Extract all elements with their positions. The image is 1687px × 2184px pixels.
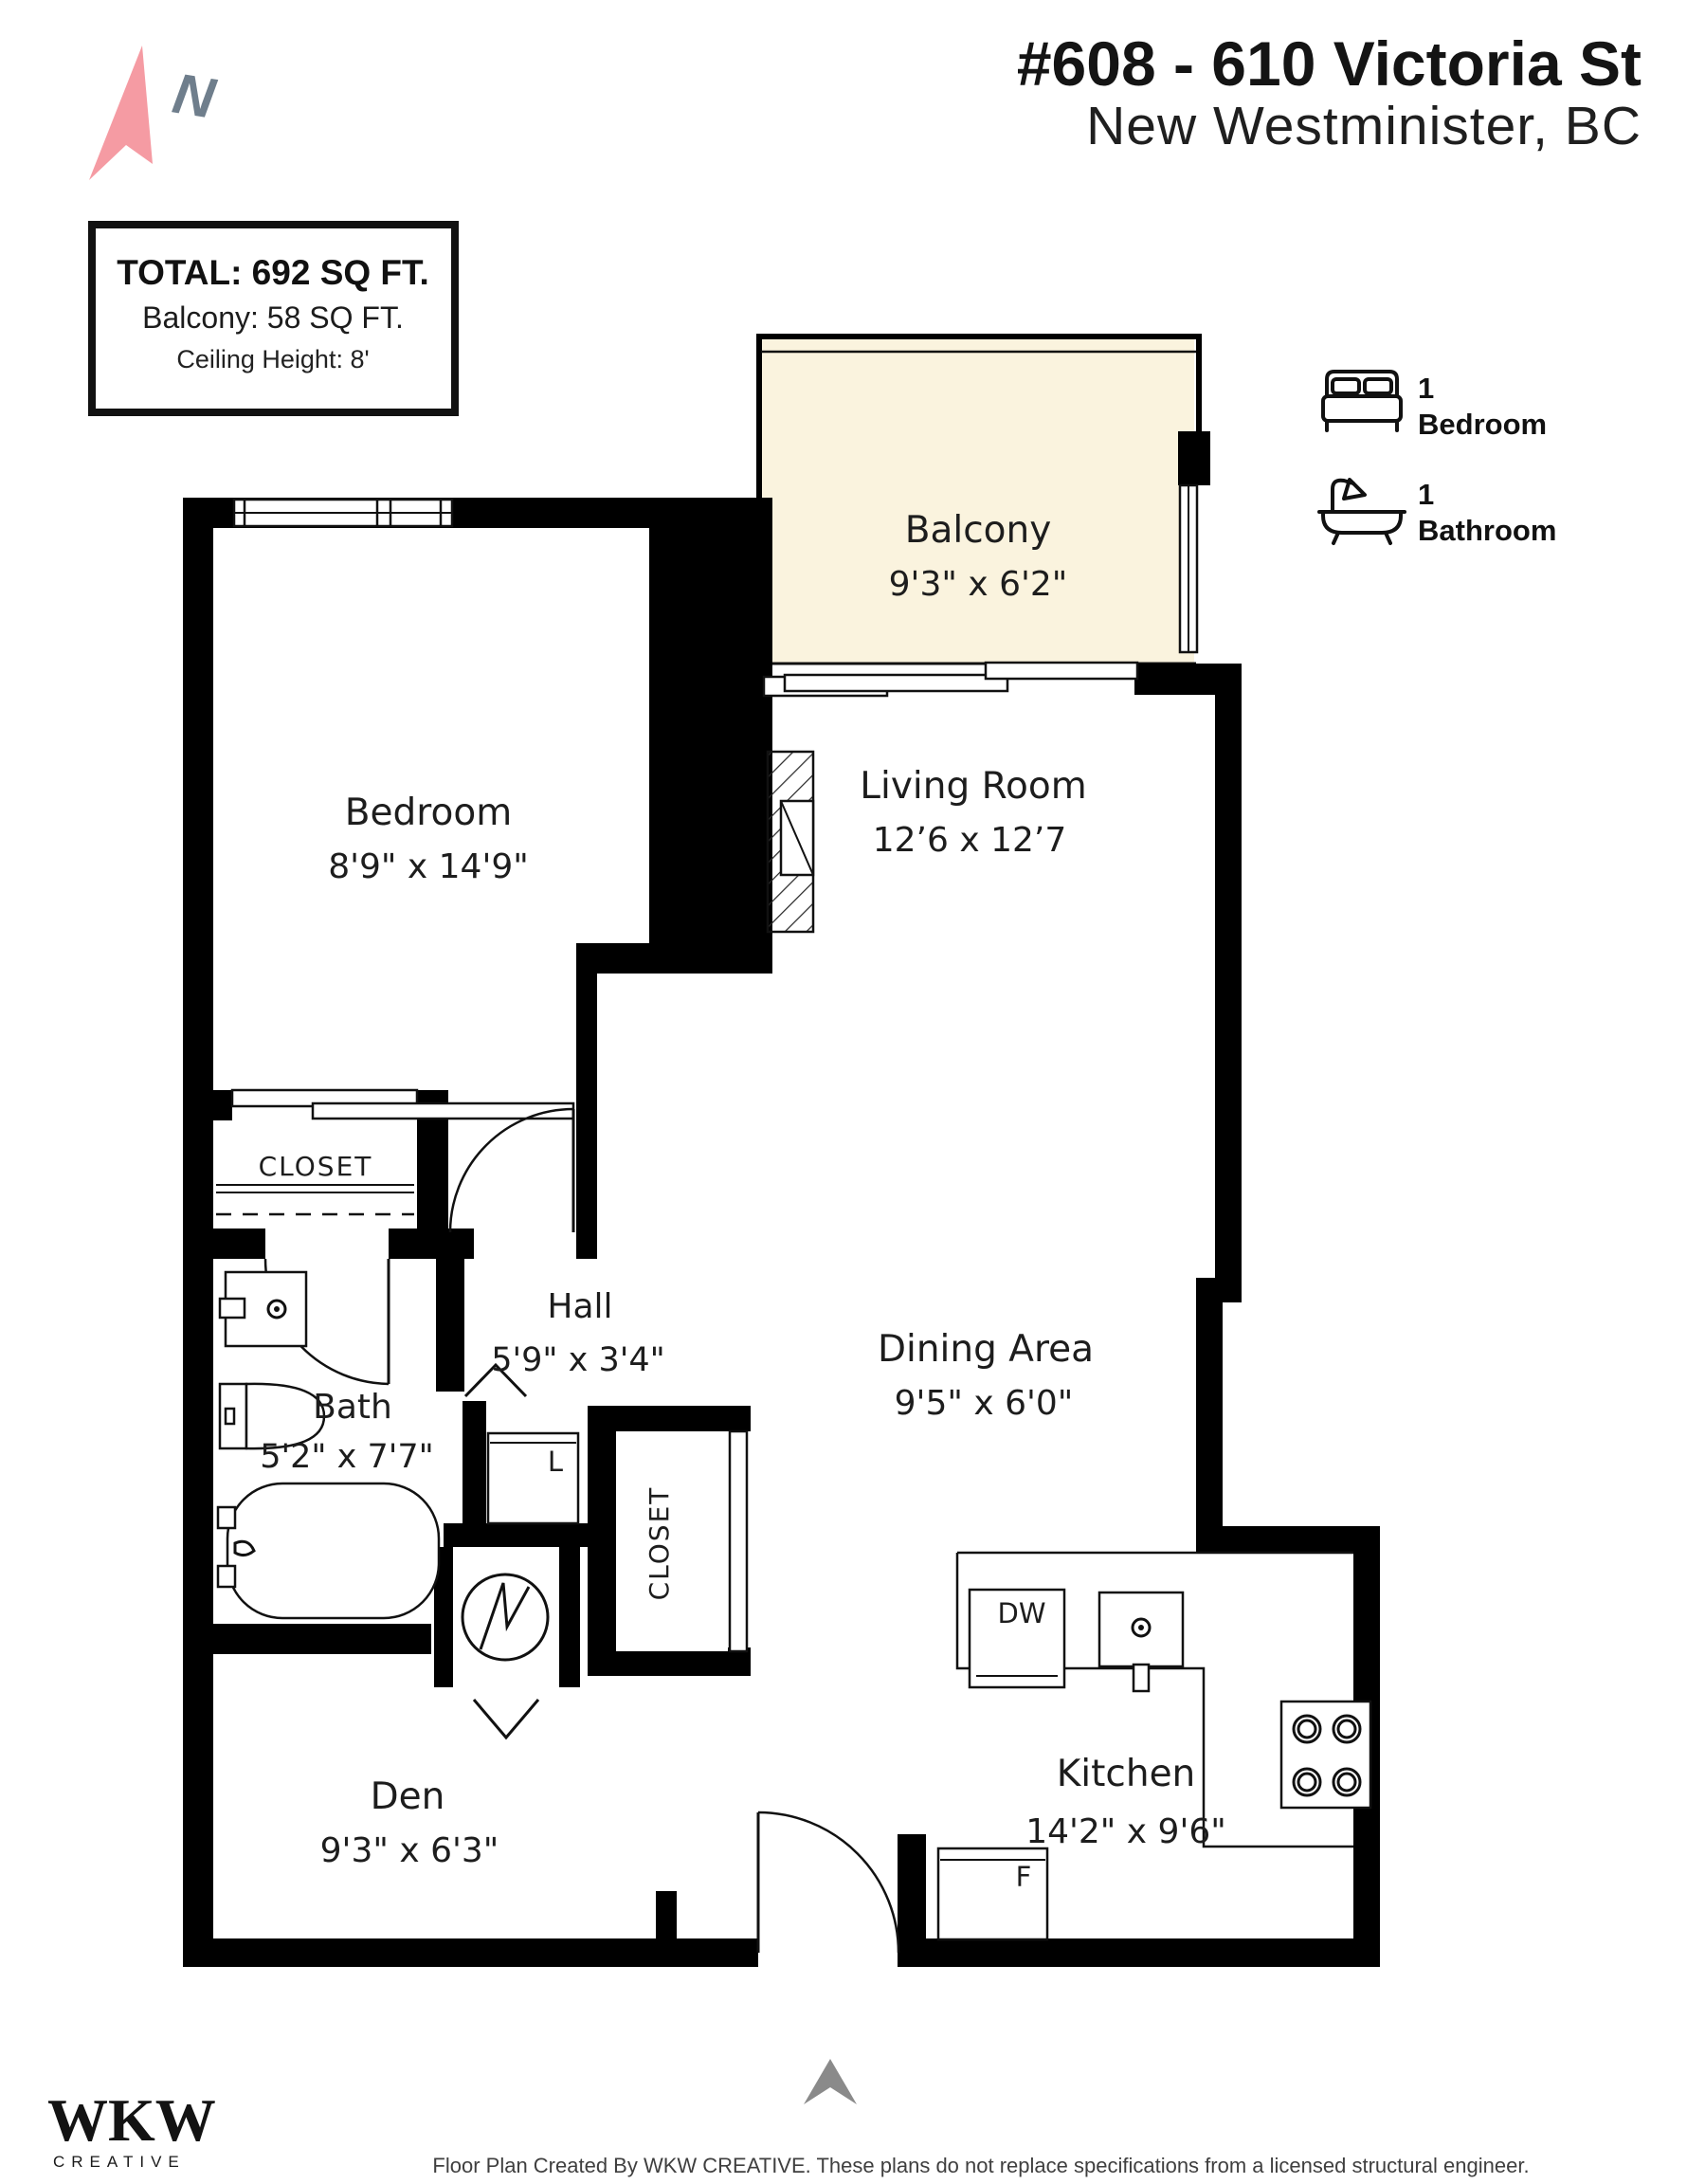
bedroom-window (234, 500, 452, 526)
kitchen-name: Kitchen (1057, 1753, 1196, 1795)
bathroom-sink (220, 1272, 306, 1346)
ceiling-height: Ceiling Height: 8' (176, 345, 369, 373)
disclaimer-text: Floor Plan Created By WKW CREATIVE. Thes… (432, 2154, 1529, 2177)
washer-closet: L (488, 1433, 578, 1523)
living-dims: 12’6 x 12’7 (873, 821, 1067, 860)
wall-nook-right (559, 1547, 580, 1687)
dishwasher: DW (970, 1590, 1064, 1687)
wall-hallcloset-left (588, 1406, 616, 1676)
bedroom-door (450, 1109, 573, 1232)
laundry-label: L (548, 1446, 563, 1478)
hall-closet-label: CLOSET (644, 1486, 675, 1601)
bath-dims: 5'2" x 7'7" (260, 1438, 433, 1476)
entry-arrow-icon (804, 2059, 857, 2104)
wall-closet-stub (183, 1090, 232, 1120)
bedroom-name: Bedroom (345, 792, 512, 834)
hatch-column (768, 752, 813, 932)
page-subtitle: New Westminister, BC (1086, 96, 1642, 156)
bedroom-label: Bedroom (1418, 408, 1547, 441)
wall-bedroom-hall (576, 967, 597, 1259)
balcony-area: Balcony: 58 SQ FT. (142, 300, 404, 335)
bedroom-closet: CLOSET (216, 1090, 573, 1214)
bathroom-label: Bathroom (1418, 514, 1556, 547)
info-box: TOTAL: 692 SQ FT. Balcony: 58 SQ FT. Cei… (92, 225, 455, 412)
bathtub-icon (1319, 480, 1405, 543)
north-arrow-icon (89, 45, 153, 180)
logo-wkw: WKW (47, 2086, 216, 2154)
hall-closet: CLOSET (644, 1431, 747, 1651)
page-title: #608 - 610 Victoria St (1017, 28, 1642, 99)
compass: N (89, 45, 221, 180)
hall-name: Hall (547, 1287, 612, 1326)
dishwasher-label: DW (997, 1597, 1045, 1629)
wall-kitchen-top (1196, 1526, 1380, 1553)
kitchen-sink (1099, 1592, 1183, 1691)
water-heater (463, 1574, 548, 1660)
wall-bath-top-a (183, 1228, 265, 1259)
wall-center-column (649, 498, 772, 943)
wall-entry-stub (656, 1891, 677, 1943)
balcony-window (1180, 485, 1197, 652)
bedroom-dims: 8'9" x 14'9" (328, 847, 529, 886)
wall-den-top (183, 1624, 431, 1654)
wall-column-cap (576, 943, 772, 974)
dining-dims: 9'5" x 6'0" (895, 1384, 1074, 1423)
footer: WKW CREATIVE Floor Plan Created By WKW C… (47, 2086, 1530, 2177)
bathtub (218, 1483, 439, 1618)
balcony-room (756, 334, 1210, 665)
den-dims: 9'3" x 6'3" (320, 1831, 499, 1870)
north-label: N (169, 62, 221, 131)
living-sliding-door (764, 663, 1137, 696)
balcony-dims: 9'3" x 6'2" (889, 565, 1068, 604)
entry-door (758, 1812, 898, 1953)
wall-living-top-corner (1134, 664, 1215, 695)
kitchen-dims: 14'2" x 9'6" (1025, 1812, 1226, 1851)
total-area: TOTAL: 692 SQ FT. (117, 253, 429, 292)
wall-hallcloset-bottom (588, 1651, 751, 1676)
living-name: Living Room (860, 765, 1086, 808)
wall-laundry-left (463, 1401, 486, 1526)
balcony-column (1178, 431, 1210, 485)
floor-plan-page: N #608 - 610 Victoria St New Westministe… (0, 0, 1687, 2184)
stove (1281, 1702, 1370, 1808)
wall-bottom-right (898, 1938, 1380, 1967)
bedroom-closet-label: CLOSET (259, 1151, 373, 1182)
fridge: F (938, 1848, 1047, 1939)
den-passage-chevron (474, 1700, 538, 1738)
fridge-label: F (1016, 1861, 1032, 1893)
wall-under-laundry (444, 1523, 592, 1547)
wall-living-right (1215, 664, 1242, 1289)
hall-dims: 5'9" x 3'4" (491, 1341, 664, 1379)
legend-bathroom: 1 Bathroom (1319, 478, 1556, 547)
bathroom-count: 1 (1418, 478, 1434, 511)
logo-creative: CREATIVE (53, 2153, 186, 2171)
bed-icon (1323, 372, 1401, 430)
walls (183, 498, 1380, 1967)
den-name: Den (371, 1775, 445, 1818)
legend-bedroom: 1 Bedroom (1323, 372, 1547, 441)
dining-name: Dining Area (878, 1328, 1094, 1371)
bath-name: Bath (313, 1388, 392, 1427)
wall-hallcloset-top (588, 1406, 751, 1431)
bedroom-count: 1 (1418, 372, 1434, 405)
balcony-name: Balcony (905, 509, 1052, 552)
wall-hallcloset-front-top (728, 1409, 751, 1431)
wall-bath-top-b (389, 1228, 474, 1259)
balcony-floor (761, 338, 1194, 664)
wall-dining-right-lower (1196, 1289, 1223, 1553)
wall-bath-right (436, 1259, 464, 1392)
